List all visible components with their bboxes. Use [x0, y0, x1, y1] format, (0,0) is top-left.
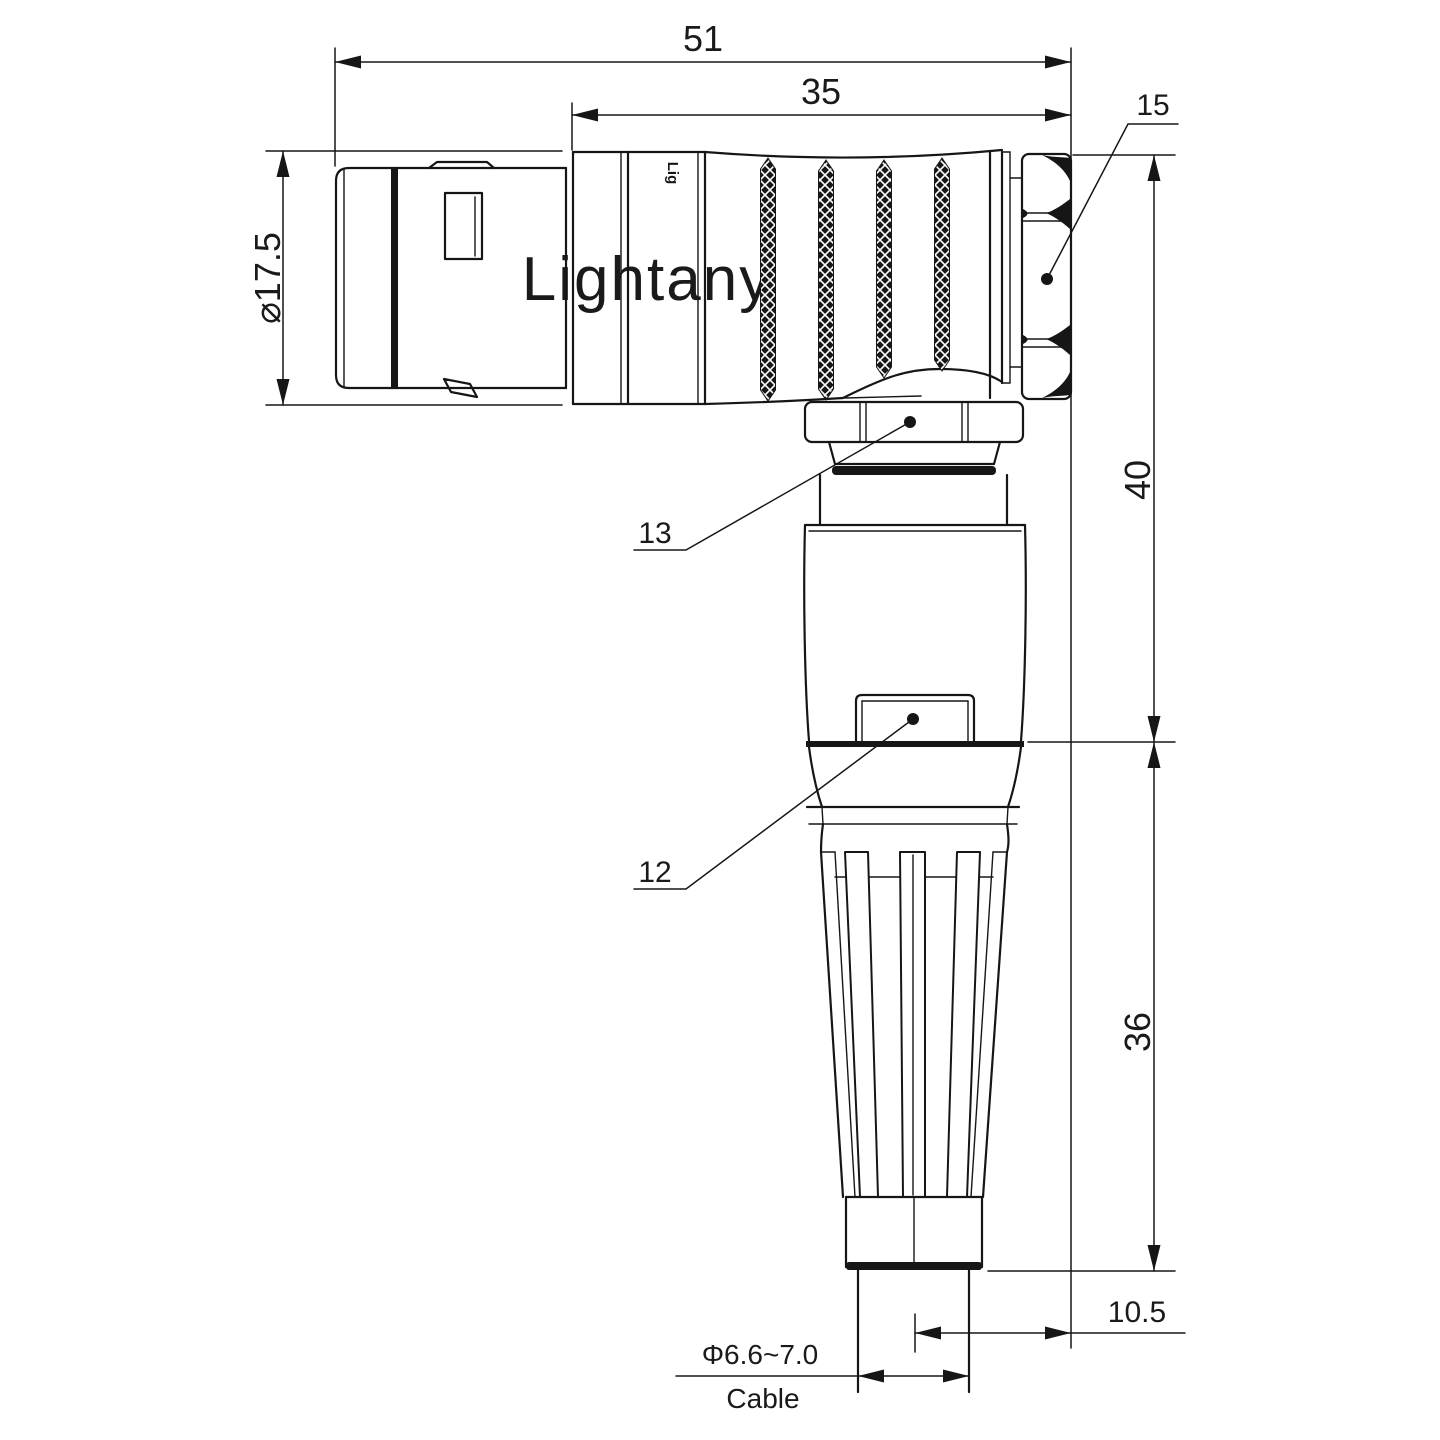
dim-value-diameter: ⌀17.5 [247, 232, 288, 324]
elbow-fillet [843, 369, 1002, 398]
arrowhead [1045, 1327, 1071, 1340]
arrowhead [1148, 1245, 1161, 1271]
dimension-axis-offset: 10.5 [915, 1296, 1185, 1352]
ref-label-12: 12 [638, 856, 671, 889]
dim-value-40: 40 [1117, 460, 1158, 500]
dimension-rear-length: 35 [572, 71, 1071, 150]
o-ring-band [832, 466, 996, 475]
dim-value-10-5: 10.5 [1108, 1296, 1166, 1329]
strain-relief-fin [845, 852, 878, 1197]
technical-drawing-page: Lightany Lig [0, 0, 1440, 1440]
arrowhead [1148, 716, 1161, 742]
dimension-front-diameter: ⌀17.5 [247, 151, 562, 405]
knurl-strip [819, 160, 834, 400]
knurl-strip [877, 160, 892, 378]
arrowhead [277, 151, 290, 177]
front-barrel-groove [391, 169, 398, 387]
strain-relief-left-edge [821, 824, 843, 1197]
housing-left-edge [804, 525, 809, 741]
hex-chamfer-shade [1023, 335, 1028, 344]
dim-value-51: 51 [683, 18, 723, 59]
shoulder-left [809, 747, 822, 807]
connector-elbow-drawing: Lightany Lig [0, 0, 1440, 1440]
knurl-strip [761, 158, 776, 401]
dim-value-36: 36 [1117, 1012, 1158, 1052]
hex-chamfer-shade [1042, 155, 1070, 181]
shoulder-right [1008, 747, 1021, 807]
housing-right-edge [1021, 525, 1026, 741]
arrowhead [943, 1370, 969, 1383]
strain-relief-right-edge [983, 824, 1009, 1197]
knurl-strip [935, 158, 950, 371]
arrowhead [572, 109, 598, 122]
shoulder-side [822, 807, 823, 824]
arrowhead [1148, 742, 1161, 768]
dimension-elbow-height: 40 [1028, 155, 1175, 742]
arrowhead [335, 56, 361, 69]
arrowhead [1045, 109, 1071, 122]
callout-13-coupling-nut: 13 [634, 416, 916, 550]
leader-line [1047, 124, 1178, 279]
cable-word-label: Cable [726, 1383, 799, 1414]
boot-bottom-band [846, 1262, 982, 1270]
callout-12-housing-latch: 12 [634, 713, 919, 889]
ref-label-15: 15 [1136, 89, 1169, 122]
engraved-brand-mark: Lig [664, 162, 681, 185]
watermark-text: Lightany [522, 245, 772, 314]
shoulder-side [1007, 807, 1008, 824]
callout-15-backnut: 15 [1041, 89, 1178, 285]
strain-relief-fin [947, 852, 980, 1197]
arrowhead [858, 1370, 884, 1383]
elbow-seam [845, 396, 921, 398]
latch-window-front [445, 193, 482, 259]
dimension-cable: Φ6.6~7.0 Cable [676, 1339, 969, 1414]
arrowhead [1148, 155, 1161, 181]
ref-label-13: 13 [638, 517, 671, 550]
hex-chamfer-shade [1023, 209, 1028, 218]
dimension-boot-height: 36 [988, 742, 1175, 1271]
cable-diameter-label: Φ6.6~7.0 [702, 1339, 819, 1370]
arrowhead [277, 379, 290, 405]
knurl-top-edge [705, 150, 1002, 158]
hex-chamfer-shade [1046, 325, 1070, 355]
arrowhead [915, 1327, 941, 1340]
hex-chamfer-shade [1046, 199, 1070, 229]
housing-bottom-band [806, 741, 1024, 747]
dim-value-35: 35 [801, 71, 841, 112]
arrowhead [1045, 56, 1071, 69]
hex-chamfer-shade [1042, 372, 1070, 398]
connector-vertical-body [804, 402, 1026, 1392]
